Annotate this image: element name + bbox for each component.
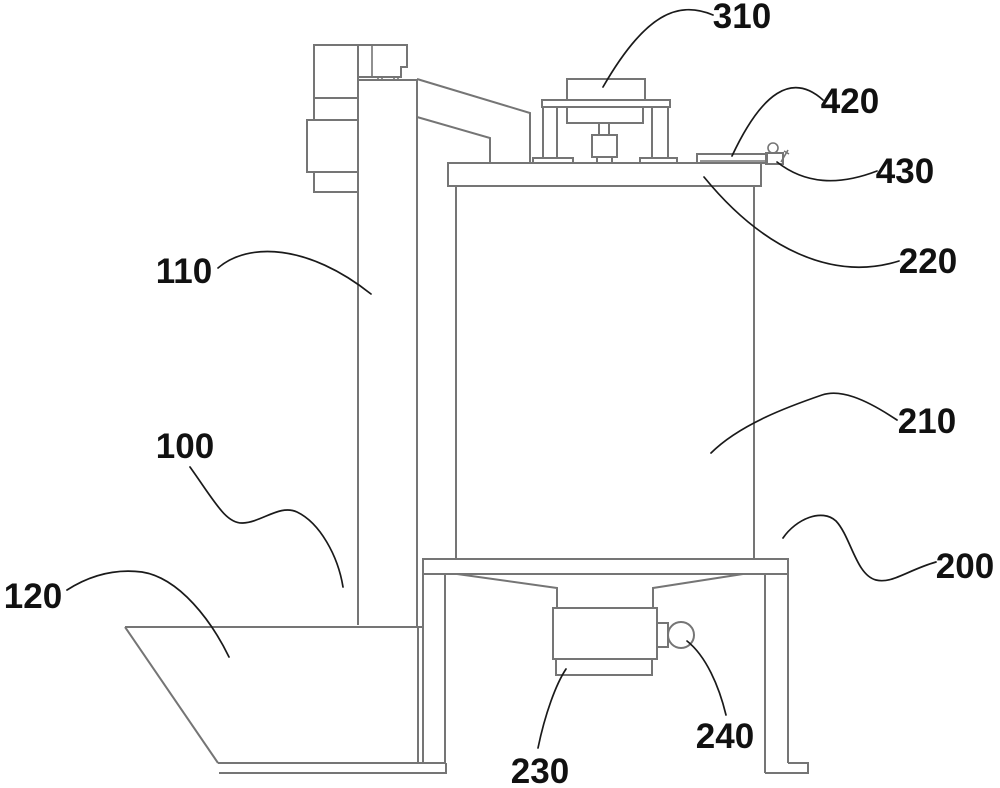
leader-230 bbox=[538, 669, 566, 748]
discharge-device bbox=[553, 608, 657, 675]
leader-210 bbox=[711, 393, 897, 453]
label-430: 430 bbox=[876, 152, 934, 191]
shaft-coupling bbox=[592, 135, 617, 157]
tank-body bbox=[456, 186, 754, 559]
leader-lines bbox=[67, 10, 936, 748]
bottom-funnel bbox=[457, 574, 743, 608]
label-220: 220 bbox=[899, 242, 957, 281]
diagram-canvas: 310 420 430 220 110 210 100 200 120 230 … bbox=[0, 0, 1000, 788]
elevator-column bbox=[358, 79, 417, 626]
label-100: 100 bbox=[156, 427, 214, 466]
leader-220 bbox=[704, 177, 899, 267]
patent-figure: 310 420 430 220 110 210 100 200 120 230 … bbox=[0, 0, 1000, 788]
label-210: 210 bbox=[898, 402, 956, 441]
label-420: 420 bbox=[821, 82, 879, 121]
leader-240 bbox=[687, 641, 726, 715]
label-240: 240 bbox=[696, 717, 754, 756]
label-110: 110 bbox=[156, 252, 212, 291]
inclined-chute bbox=[417, 79, 530, 163]
feed-hopper bbox=[125, 627, 447, 773]
leader-110 bbox=[218, 252, 371, 294]
discharge-knob bbox=[657, 622, 694, 648]
stirrer-gantry bbox=[533, 79, 677, 163]
leader-430 bbox=[777, 162, 877, 181]
leader-120 bbox=[67, 571, 229, 657]
label-310: 310 bbox=[713, 0, 771, 36]
label-230: 230 bbox=[511, 752, 569, 788]
relief-valve bbox=[766, 143, 789, 164]
leader-310 bbox=[603, 10, 713, 87]
label-120: 120 bbox=[4, 577, 62, 616]
leader-200 bbox=[783, 515, 936, 580]
tank-lid bbox=[448, 163, 761, 186]
label-200: 200 bbox=[936, 547, 994, 586]
leader-100 bbox=[190, 467, 343, 587]
